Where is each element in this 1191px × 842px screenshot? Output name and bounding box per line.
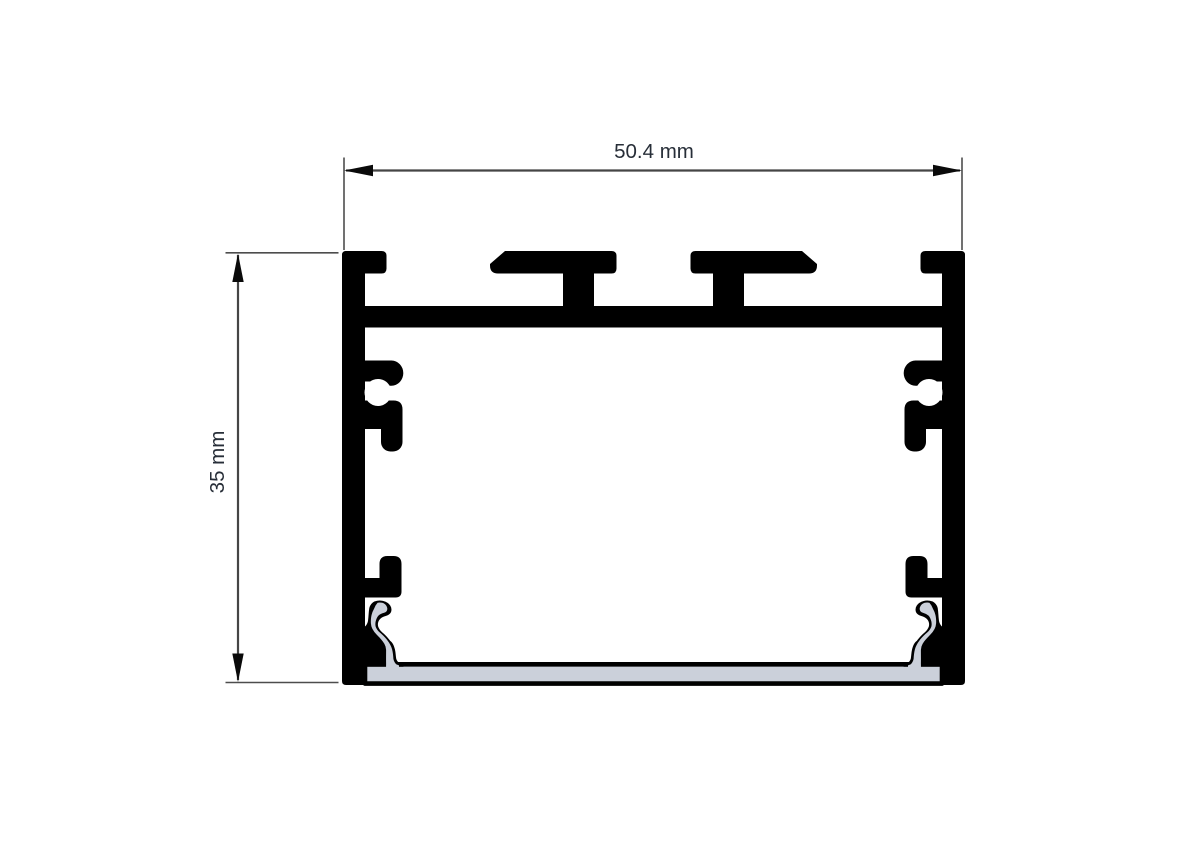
- svg-text:50.4 mm: 50.4 mm: [614, 140, 694, 163]
- svg-text:35 mm: 35 mm: [206, 431, 229, 494]
